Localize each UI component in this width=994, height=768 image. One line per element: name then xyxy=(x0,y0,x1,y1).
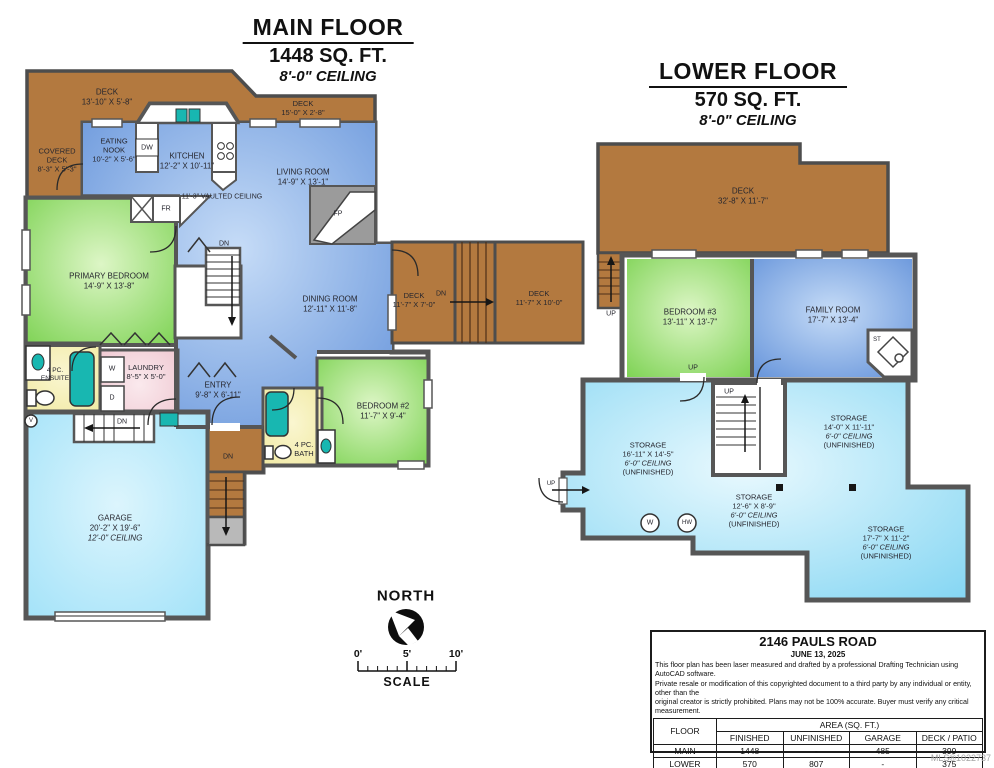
bath-sink xyxy=(321,439,331,453)
main-floor-title: MAIN FLOOR xyxy=(243,14,414,44)
deck-right-stairs xyxy=(455,242,495,343)
door-gap xyxy=(757,379,781,387)
room-label-deck-upper-right: DECK15'-0" X 2'-8" xyxy=(281,99,324,117)
main-floor-ceiling: 8'-0" CEILING xyxy=(243,68,414,85)
room-label-garage: GARAGE20'-2" X 19'-6"12'-0" CEILING xyxy=(88,513,143,542)
stove-burner xyxy=(227,153,234,160)
scale-tick-10: 10' xyxy=(449,648,463,660)
vacuum-label: V xyxy=(29,418,33,424)
window xyxy=(92,119,122,127)
room-label-ensuite: 4 PC.ENSUITE xyxy=(41,367,69,383)
entry-closet-fixture xyxy=(160,413,178,426)
room-label-eating-nook: EATINGNOOK10'-2" X 5'-6" xyxy=(92,136,135,163)
room-label-dining-room: DINING ROOM12'-11" X 11'-8" xyxy=(302,294,357,314)
lower-floor-title: LOWER FLOOR xyxy=(649,58,847,88)
mls-number: MLS®1022737 xyxy=(931,753,991,763)
lower-floor-ceiling: 8'-0" CEILING xyxy=(649,112,847,129)
washer-label: W xyxy=(109,366,116,373)
room-label-bedroom3: BEDROOM #313'-11" X 13'-7" xyxy=(663,307,717,327)
stove-label: ST xyxy=(873,337,881,343)
stairs-dn-label: DN xyxy=(219,241,229,248)
door-gap xyxy=(210,423,240,431)
stove-burner xyxy=(227,143,234,150)
stairs-dn-label: DN xyxy=(223,454,233,461)
stove-burner xyxy=(218,153,225,160)
date: JUNE 13, 2025 xyxy=(652,650,984,659)
address: 2146 PAULS ROAD xyxy=(652,634,984,649)
room-label-entry: ENTRY9'-8" X 6'-11" xyxy=(195,380,241,400)
room-label-primary-bedroom: PRIMARY BEDROOM14'-9" X 13'-8" xyxy=(69,271,149,291)
stairs-up-label: UP xyxy=(724,389,734,396)
scale-label: SCALE xyxy=(383,675,430,689)
info-box: 2146 PAULS ROAD JUNE 13, 2025 This floor… xyxy=(650,630,986,753)
kitchen-sink xyxy=(176,109,187,122)
toilet-tank xyxy=(265,446,273,459)
fridge-label: FR xyxy=(161,206,170,213)
stairs-up-label: UP xyxy=(606,311,616,318)
stairs-dn-label: DN xyxy=(117,419,127,426)
col-finished: FINISHED xyxy=(717,731,784,744)
window xyxy=(22,285,30,315)
room-label-bedroom2: BEDROOM #211'-7" X 9'-4" xyxy=(357,401,409,421)
window xyxy=(300,119,340,127)
entry-landing-shape xyxy=(208,427,263,472)
room-label-kitchen: KITCHEN12'-2" X 10'-11" xyxy=(160,151,214,171)
stove-vent xyxy=(895,354,903,362)
washer-label: W xyxy=(647,520,654,527)
dryer-label: D xyxy=(109,395,114,402)
door-gap xyxy=(559,478,567,504)
main-floor-area: 1448 SQ. FT. xyxy=(243,45,414,68)
scale-tick-5: 5' xyxy=(403,648,411,660)
window xyxy=(398,461,424,469)
scale-tick-0: 0' xyxy=(354,648,362,660)
main-floor-header: MAIN FLOOR 1448 SQ. FT. 8'-0" CEILING xyxy=(243,14,414,85)
room-label-storage-bottom-right: STORAGE17'-7" X 11'-2" 6'-0" CEILING(UNF… xyxy=(861,525,912,562)
room-label-family-room: FAMILY ROOM17'-7" X 13'-4" xyxy=(806,305,861,325)
vaulted-ceiling-note: 11'-3" VAULTED CEILING xyxy=(182,194,262,201)
room-label-covered-deck: COVEREDDECK8'-3" X 5'-3" xyxy=(37,146,76,173)
room-label-storage-mid-right: STORAGE14'-0" X 11'-11" 6'-0" CEILING(UN… xyxy=(824,414,875,451)
room-label-lower-deck: DECK32'-8" X 11'-7" xyxy=(718,186,768,206)
lower-floor-area: 570 SQ. FT. xyxy=(649,89,847,112)
room-label-bath: 4 PC.BATH xyxy=(294,440,313,458)
stairs-up-label: UP xyxy=(547,481,555,487)
window xyxy=(22,230,30,270)
window xyxy=(250,119,276,127)
window xyxy=(652,250,696,258)
stove-burner xyxy=(218,143,225,150)
support-post xyxy=(849,484,856,491)
stairs-up-label: UP xyxy=(688,365,698,372)
window xyxy=(842,250,868,258)
toilet-tank xyxy=(27,390,36,406)
col-deck-patio: DECK / PATIO xyxy=(916,731,983,744)
window xyxy=(796,250,822,258)
disclaimer: This floor plan has been laser measured … xyxy=(652,659,984,718)
floor-header-cell: FLOOR xyxy=(654,718,717,744)
room-label-storage-center: STORAGE12'-6" X 8'-9" 6'-0" CEILING(UNFI… xyxy=(729,493,780,530)
fireplace-label: FP xyxy=(334,211,343,218)
room-label-deck-top: DECK13'-10" X 5'-8" xyxy=(82,87,133,107)
hot-water-label: HW xyxy=(682,520,692,526)
col-garage: GARAGE xyxy=(850,731,917,744)
room-label-deck-right-small: DECK11'-7" X 7'-0" xyxy=(393,291,436,309)
dishwasher-label: DW xyxy=(141,145,153,152)
kitchen-bay-counter xyxy=(138,104,238,123)
stairs-dn-label: DN xyxy=(436,291,446,298)
window xyxy=(424,380,432,408)
north-label: NORTH xyxy=(377,588,435,605)
col-unfinished: UNFINISHED xyxy=(783,731,850,744)
bath-tub xyxy=(266,392,288,436)
room-label-living-room: LIVING ROOM14'-9" X 13'-1" xyxy=(276,167,329,187)
room-label-storage-left: STORAGE16'-11" X 14'-5" 6'-0" CEILING(UN… xyxy=(623,441,674,478)
lower-floor-header: LOWER FLOOR 570 SQ. FT. 8'-0" CEILING xyxy=(649,58,847,129)
room-label-deck-right-large: DECK11'-7" X 10'-0" xyxy=(516,289,563,307)
kitchen-sink xyxy=(189,109,200,122)
room-label-laundry: LAUNDRY8'-5" X 5'-0" xyxy=(126,363,165,381)
door-gap xyxy=(680,373,706,381)
toilet xyxy=(36,391,54,405)
floor-plan-page: { "colors": { "deck": "#b3793f", "wall":… xyxy=(0,0,994,768)
toilet xyxy=(275,446,291,459)
area-header-cell: AREA (SQ. FT.) xyxy=(717,718,983,731)
support-post xyxy=(776,484,783,491)
